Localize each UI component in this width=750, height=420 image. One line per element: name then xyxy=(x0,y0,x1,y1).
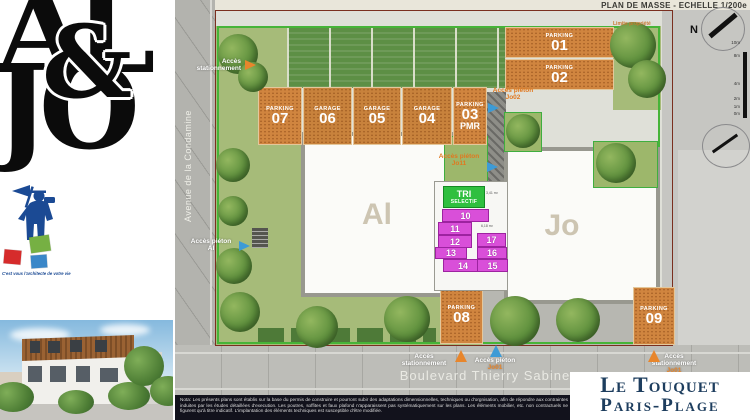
avenue-name: Avenue de la Condamine xyxy=(183,82,193,222)
brand-tagline: C'est vous l'architecte de votre vie xyxy=(2,271,132,276)
parking-03-num: 03 xyxy=(462,108,479,122)
tree xyxy=(296,306,338,348)
building-al: Al xyxy=(301,132,453,297)
building-al-label: Al xyxy=(362,198,392,232)
curb-line-left xyxy=(210,0,212,345)
photo-bush xyxy=(108,382,150,410)
scale-bar xyxy=(743,52,747,118)
cloud-shape xyxy=(100,324,150,336)
entrance-gate xyxy=(252,228,268,248)
cellar-15: 15 xyxy=(477,259,508,272)
access-jo02-line2: Jo02 xyxy=(506,94,521,101)
access-bottom-parking-line1: Accès xyxy=(414,353,433,360)
cellar-11: 11 xyxy=(438,222,472,235)
access-jo11-label: Accès piéton Jo11 xyxy=(434,153,484,167)
access-top-left-line2: stationnement xyxy=(197,65,241,72)
access-jo11-arrow-icon xyxy=(487,162,498,172)
building-jo-label: Jo xyxy=(544,209,579,243)
parking-03-pmr-label: PMR xyxy=(460,122,480,131)
access-right-parking-line1: Accès xyxy=(664,353,683,360)
tree xyxy=(556,298,600,342)
photo-window xyxy=(30,341,40,353)
plan-title: PLAN DE MASSE - ECHELLE 1/200e xyxy=(505,1,747,10)
access-jo11-line1: Accès piéton xyxy=(439,153,479,160)
photo-window xyxy=(28,366,42,382)
garage-06-num: 06 xyxy=(319,112,336,126)
logo-square-green xyxy=(29,235,51,254)
logo-square-red xyxy=(3,249,21,264)
building-photo xyxy=(0,320,173,420)
photo-window xyxy=(50,366,66,382)
parking-02: PARKING 02 xyxy=(505,59,614,90)
access-top-left-arrow-icon xyxy=(245,60,256,70)
parking-08-num: 08 xyxy=(453,311,470,325)
parking-09-num: 09 xyxy=(646,312,663,326)
photo-window xyxy=(76,366,90,382)
plan-notes: Nota: Les présents plans sont établis su… xyxy=(175,395,573,420)
photo-bush xyxy=(58,390,94,414)
cellar-13: 13 xyxy=(435,247,467,259)
mascot-icon xyxy=(8,182,68,244)
scale-label-4m: 4m xyxy=(724,81,740,86)
tree xyxy=(216,248,252,284)
access-bottom-parking-label: Accès stationnement xyxy=(398,353,450,367)
city-logo-line2: Paris-Plage xyxy=(570,396,750,415)
area-label-1: 3,41 m² xyxy=(486,191,498,195)
city-logo-line1: Le Touquet xyxy=(570,374,750,396)
tree xyxy=(216,148,250,182)
garage-06: GARAGE 06 xyxy=(303,87,352,145)
scale-label-1m: 1m xyxy=(724,104,740,109)
aljo-logo: AL JO & xyxy=(0,0,175,178)
scale-label-8m: 8m xyxy=(724,53,740,58)
parking-02-num: 02 xyxy=(551,71,568,85)
garage-05-num: 05 xyxy=(369,112,386,126)
garage-04: GARAGE 04 xyxy=(402,87,452,145)
scale-label-10m: 10m xyxy=(724,40,740,45)
scale-label-0m: 0m xyxy=(724,111,740,116)
garage-05: GARAGE 05 xyxy=(353,87,401,145)
tree xyxy=(218,196,248,226)
tree xyxy=(490,296,540,346)
access-bottom-parking-line2: stationnement xyxy=(402,360,446,367)
cellar-17: 17 xyxy=(477,233,506,247)
logo-square-blue xyxy=(31,254,48,268)
tree xyxy=(506,114,540,148)
access-al-label: Accès piéton Al xyxy=(185,238,237,252)
scale-label-2m: 2m xyxy=(724,96,740,101)
access-al-line1: Accès piéton xyxy=(191,238,231,245)
access-jo02-arrow-icon xyxy=(488,103,499,113)
photo-window xyxy=(95,340,107,352)
parking-01: PARKING 01 xyxy=(505,27,614,58)
garage-04-num: 04 xyxy=(419,112,436,126)
photo-window xyxy=(100,368,118,382)
access-right-parking-arrow-icon xyxy=(648,350,660,362)
tri-label-2: SELECTIF xyxy=(444,199,484,205)
photo-window xyxy=(70,340,82,352)
tri-selectif-area: TRI SELECTIF xyxy=(443,186,485,208)
access-jo02-label: Accès piéton Jo02 xyxy=(486,87,540,101)
city-logo: Le Touquet Paris-Plage xyxy=(570,372,750,420)
property-line-bottom xyxy=(215,345,673,346)
parking-08: PARKING 08 xyxy=(440,285,483,344)
parking-09: PARKING 09 xyxy=(633,287,675,345)
parking-07: PARKING 07 xyxy=(258,87,302,145)
access-bottom-parking-arrow-icon xyxy=(455,350,467,362)
photo-window xyxy=(48,341,60,353)
access-bottom-pedestrian-line1: Accès piéton xyxy=(475,357,515,364)
right-margin-light-area xyxy=(678,150,750,372)
logo-ampersand: & xyxy=(42,12,132,112)
access-top-left-line1: Accès xyxy=(222,58,241,65)
tree xyxy=(384,296,430,342)
tri-label-1: TRI xyxy=(444,190,484,199)
parking-01-num: 01 xyxy=(551,39,568,53)
access-top-left-label: Accès stationnement xyxy=(183,58,241,72)
access-al-line2: Al xyxy=(208,245,215,252)
parking-03-pmr: PARKING 03 PMR xyxy=(453,87,487,145)
area-label-2: 6,18 m² xyxy=(481,224,493,228)
access-al-arrow-icon xyxy=(239,241,250,251)
tree xyxy=(628,60,666,98)
cellar-16: 16 xyxy=(477,247,507,259)
property-line-top xyxy=(215,10,672,11)
parking-07-num: 07 xyxy=(272,112,289,126)
cellar-10: 10 xyxy=(442,209,489,222)
turning-circle-icon xyxy=(702,124,750,168)
access-jo11-line2: Jo11 xyxy=(452,160,466,167)
boulevard-name: Boulevard Thierry Sabine xyxy=(390,368,580,383)
access-bottom-pedestrian-arrow-icon xyxy=(490,345,502,357)
tree xyxy=(596,143,636,183)
tree xyxy=(220,292,260,332)
property-limit-label: Limite propriété xyxy=(613,21,651,27)
access-jo02-line1: Accès piéton xyxy=(493,87,533,94)
site-plan-screenshot: Al Jo PARKING 01 PARKING 02 PARKING 07 G… xyxy=(0,0,750,420)
compass-north-label: N xyxy=(690,24,698,36)
